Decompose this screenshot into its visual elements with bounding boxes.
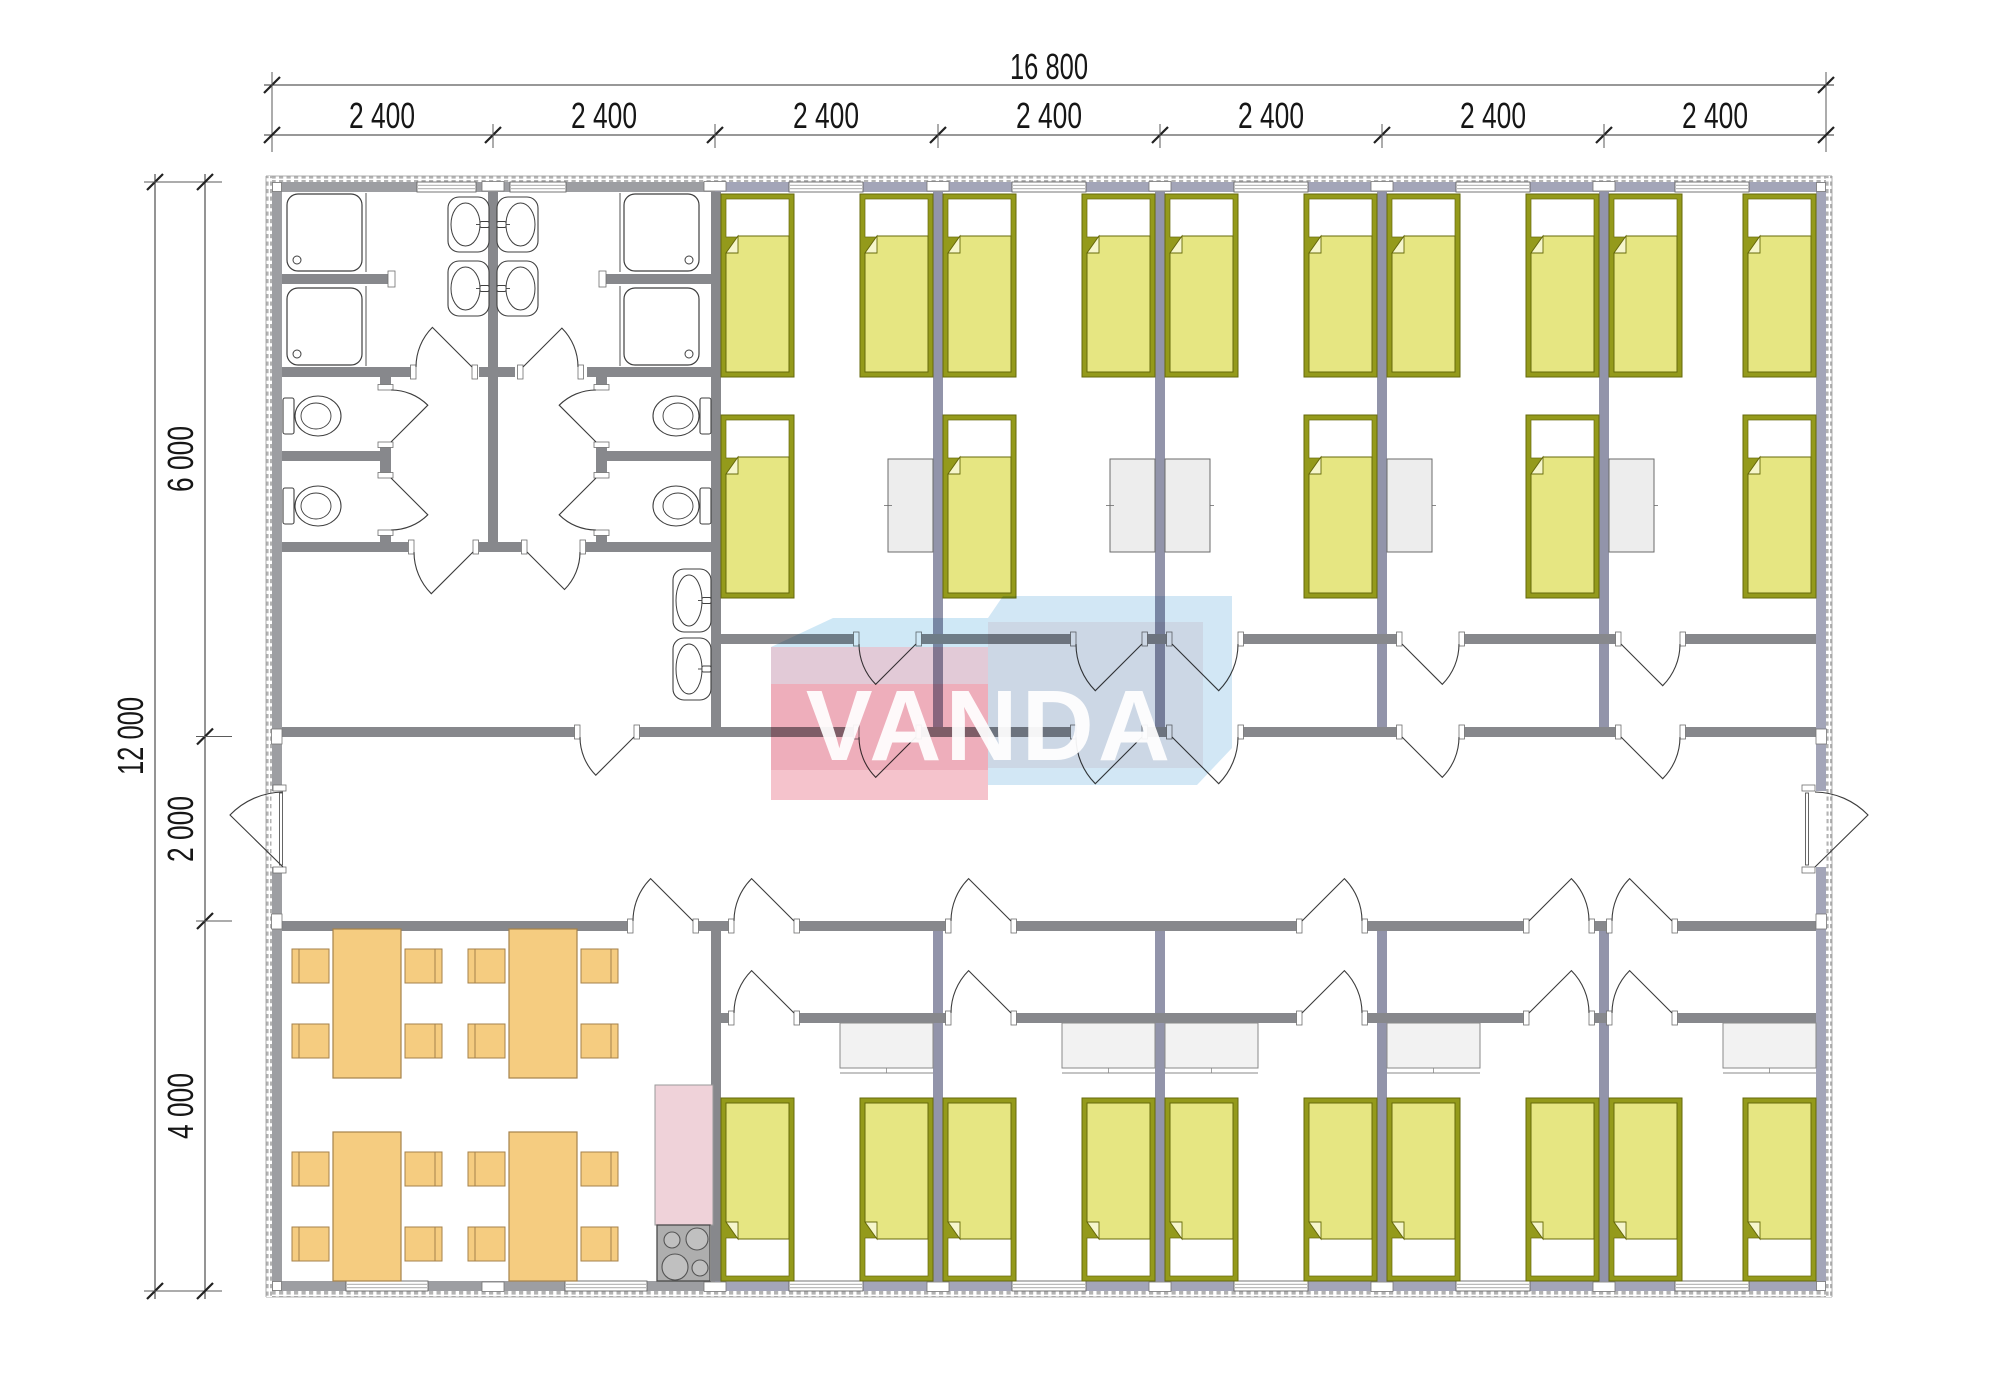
svg-text:2 000: 2 000 — [160, 796, 201, 862]
svg-text:16 800: 16 800 — [1010, 46, 1088, 87]
svg-text:4 000: 4 000 — [160, 1073, 201, 1139]
svg-text:2 400: 2 400 — [349, 95, 415, 136]
svg-text:2 400: 2 400 — [1682, 95, 1748, 136]
svg-text:2 400: 2 400 — [1238, 95, 1304, 136]
svg-text:2 400: 2 400 — [1460, 95, 1526, 136]
svg-text:2 400: 2 400 — [1016, 95, 1082, 136]
svg-text:VANDA: VANDA — [806, 670, 1174, 782]
svg-text:6 000: 6 000 — [160, 426, 201, 492]
svg-text:12 000: 12 000 — [110, 697, 151, 775]
svg-text:2 400: 2 400 — [793, 95, 859, 136]
svg-text:2 400: 2 400 — [571, 95, 637, 136]
